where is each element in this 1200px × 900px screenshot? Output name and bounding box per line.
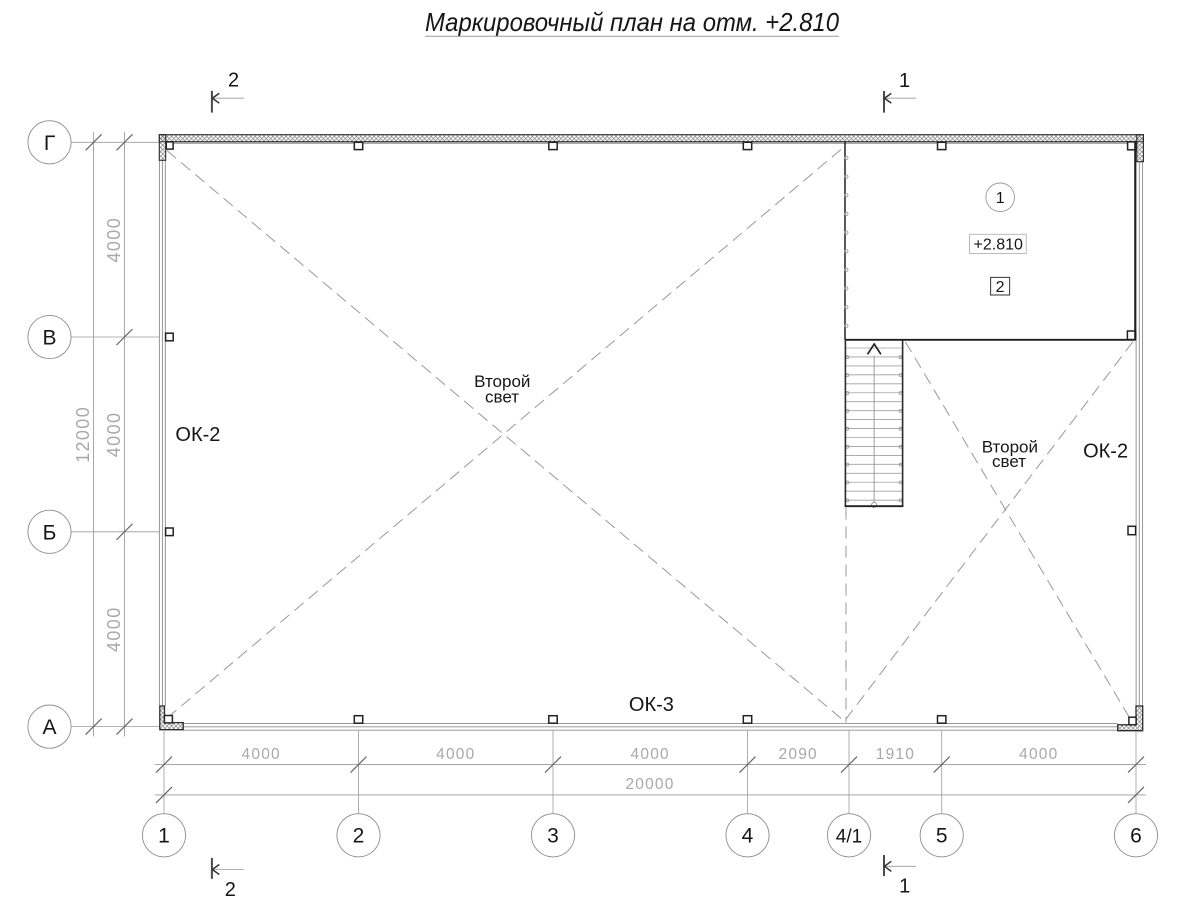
svg-text:4000: 4000: [242, 746, 281, 763]
svg-text:4000: 4000: [436, 746, 475, 763]
svg-text:ОК-3: ОК-3: [629, 694, 674, 716]
svg-text:4/1: 4/1: [836, 827, 862, 848]
svg-text:1: 1: [996, 190, 1005, 207]
svg-text:1: 1: [158, 825, 170, 848]
svg-text:2: 2: [225, 879, 236, 900]
svg-text:1910: 1910: [876, 746, 915, 763]
svg-text:свет: свет: [485, 388, 519, 407]
svg-text:4000: 4000: [1019, 746, 1058, 763]
svg-text:20000: 20000: [625, 776, 674, 793]
svg-text:3: 3: [547, 825, 559, 848]
svg-text:Б: Б: [43, 521, 57, 544]
svg-text:В: В: [42, 327, 56, 350]
svg-text:свет: свет: [992, 452, 1026, 471]
svg-text:ОК-2: ОК-2: [175, 424, 220, 446]
svg-text:12000: 12000: [73, 406, 93, 463]
svg-text:4000: 4000: [104, 606, 124, 652]
svg-text:4000: 4000: [104, 412, 124, 458]
svg-text:+2.810: +2.810: [974, 237, 1023, 254]
svg-text:2: 2: [996, 279, 1005, 296]
svg-text:А: А: [42, 716, 56, 739]
svg-text:Маркировочный план на отм. +2.: Маркировочный план на отм. +2.810: [425, 7, 839, 37]
svg-text:ОК-2: ОК-2: [1083, 440, 1128, 462]
svg-text:2: 2: [353, 825, 365, 848]
svg-text:1: 1: [899, 70, 910, 92]
svg-text:4000: 4000: [631, 746, 670, 763]
svg-text:Г: Г: [44, 132, 55, 155]
svg-text:2090: 2090: [779, 746, 818, 763]
svg-text:5: 5: [936, 825, 948, 848]
svg-text:2: 2: [228, 70, 239, 92]
svg-text:4: 4: [742, 825, 754, 848]
svg-text:6: 6: [1130, 825, 1142, 848]
svg-text:4000: 4000: [104, 217, 124, 263]
svg-text:1: 1: [899, 876, 910, 898]
